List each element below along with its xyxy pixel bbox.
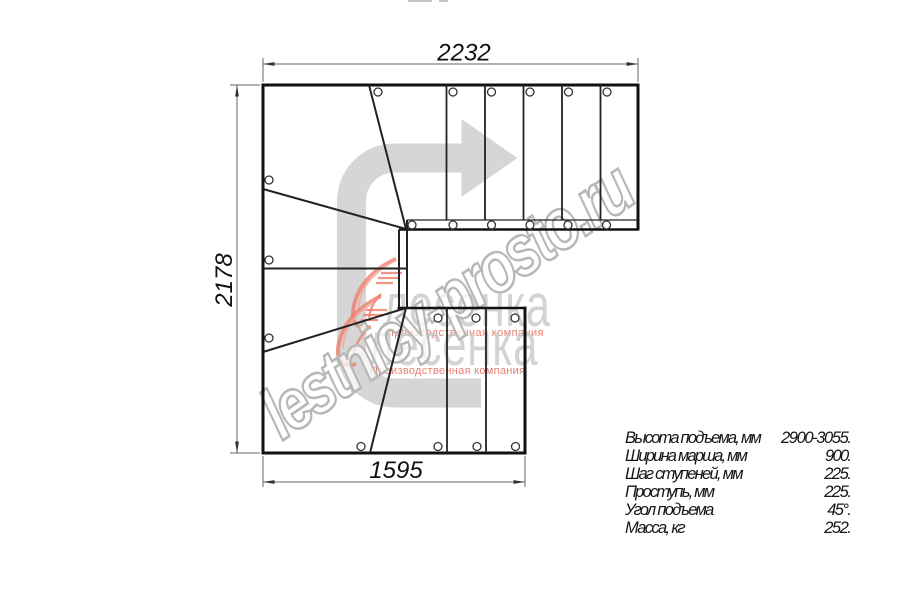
svg-text:Шаг ступеней, мм: Шаг ступеней, мм [625,465,744,483]
svg-text:900.: 900. [825,447,852,465]
svg-text:2900-3055.: 2900-3055. [780,429,852,447]
svg-text:45°.: 45°. [827,501,852,519]
svg-text:2178: 2178 [211,253,238,308]
svg-text:Проступь, мм: Проступь, мм [625,483,715,501]
svg-text:252.: 252. [823,519,852,537]
svg-text:Масса, кг: Масса, кг [625,519,686,537]
svg-text:225.: 225. [823,465,852,483]
svg-text:2232: 2232 [436,40,490,67]
svg-text:Угол подъема: Угол подъема [624,501,714,519]
svg-text:1595: 1595 [369,457,423,484]
svg-text:Высота подъема, мм: Высота подъема, мм [625,429,762,447]
svg-text:Ширина марша, мм: Ширина марша, мм [625,447,748,465]
svg-text:225.: 225. [823,483,852,501]
